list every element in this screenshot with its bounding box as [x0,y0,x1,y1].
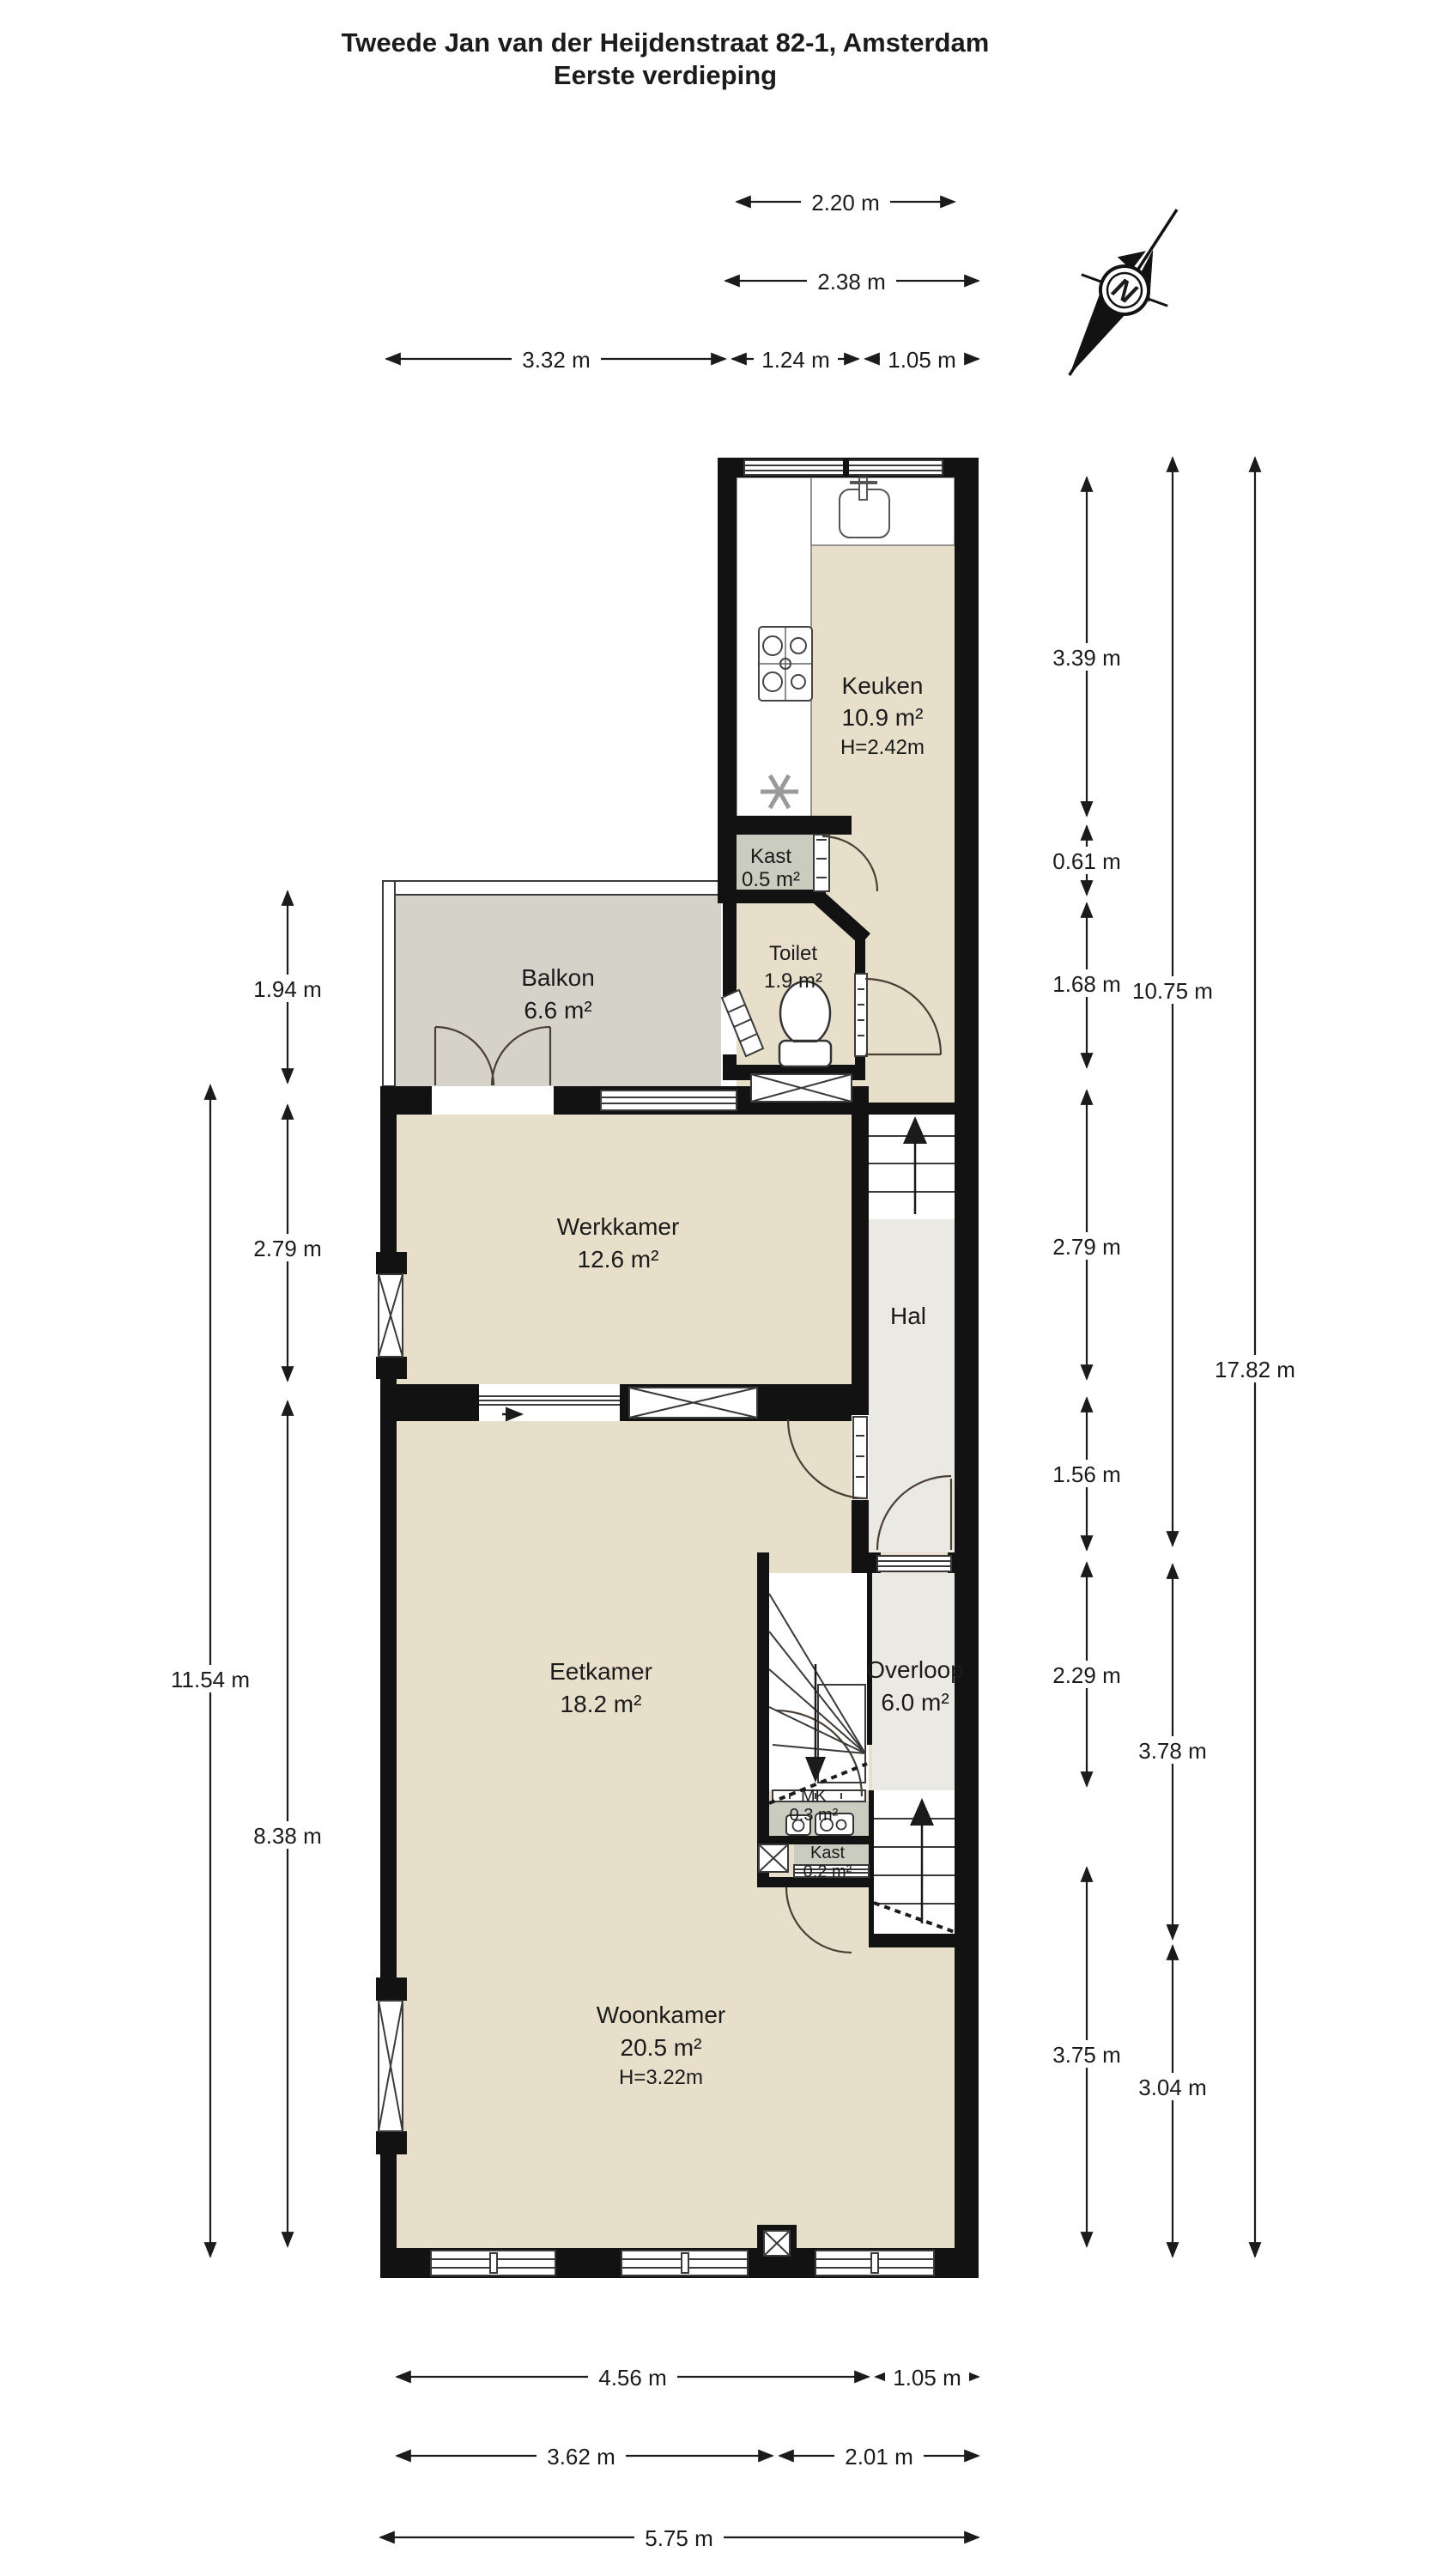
dim-left-838: 8.38 m [243,1401,332,2246]
label-mk-area: 0.3 m² [790,1806,839,1825]
svg-text:2.38 m: 2.38 m [817,269,886,295]
dim-bottom-201: 2.01 m [779,2442,979,2470]
dim-left-194: 1.94 m [243,891,332,1083]
dim-top-105: 1.05 m [865,345,979,373]
svg-text:0.61 m: 0.61 m [1052,848,1121,874]
dim-bottom-362: 3.62 m [397,2442,773,2470]
title-line2: Eerste verdieping [554,60,777,90]
page-title: Tweede Jan van der Heijdenstraat 82-1, A… [342,27,990,90]
svg-text:5.75 m: 5.75 m [645,2525,713,2551]
svg-text:2.01 m: 2.01 m [845,2444,913,2470]
label-overloop: Overloop [866,1656,964,1683]
dim-bottom-575: 5.75 m [380,2524,979,2551]
window-overloop-top [877,1556,951,1571]
stove-icon [759,627,812,701]
wall-kitchen-bottom [723,816,852,835]
label-kast-klein-area: 0.2 m² [803,1862,852,1881]
svg-text:1.05 m: 1.05 m [893,2365,961,2391]
label-keuken: Keuken [842,672,924,699]
dim-right-156: 1.56 m [1042,1398,1131,1550]
dim-right-1782: 17.82 m [1204,458,1306,2257]
balkon-wall-left [383,881,395,1086]
wall-toilet-right-upper [855,934,865,977]
wall-werkkamer-bottom [380,1384,869,1421]
svg-text:1.94 m: 1.94 m [253,976,322,1002]
svg-text:3.39 m: 3.39 m [1052,645,1121,671]
wall-right-outer [955,458,979,2278]
svg-text:3.75 m: 3.75 m [1052,2042,1121,2068]
cabinet-x-bottom [757,2225,797,2262]
wall-kitchen-left [718,458,737,903]
svg-text:17.82 m: 17.82 m [1215,1357,1295,1382]
svg-text:3.04 m: 3.04 m [1138,2075,1207,2100]
window-bottom-1 [431,2251,555,2275]
dim-right-378: 3.78 m [1128,1564,1217,1939]
label-toilet-area: 1.9 m² [764,969,822,993]
dim-right-375: 3.75 m [1042,1868,1131,2246]
dim-right-168: 1.68 m [1042,903,1131,1067]
svg-text:11.54 m: 11.54 m [171,1667,250,1692]
label-woonkamer-area: 20.5 m² [621,2034,702,2061]
compass-icon: N [1032,185,1214,400]
label-eetkamer: Eetkamer [549,1658,652,1685]
dim-top-124: 1.24 m [732,345,858,373]
window-bottom-2 [621,2251,748,2275]
svg-text:3.78 m: 3.78 m [1138,1738,1207,1764]
floorplan-canvas: Tweede Jan van der Heijdenstraat 82-1, A… [0,0,1449,2576]
label-werkkamer-area: 12.6 m² [578,1246,659,1273]
wall-toilet-left-upper [723,903,737,996]
door-balkon-opening [432,1086,554,1115]
svg-text:2.79 m: 2.79 m [1052,1234,1121,1260]
window-kitchen-top [744,459,943,477]
label-kast-boven-area: 0.5 m² [742,868,800,891]
svg-text:2.20 m: 2.20 m [811,190,880,216]
window-woonkamer-left [376,1978,407,2154]
dim-top-332: 3.32 m [386,345,725,373]
dim-top-238: 2.38 m [725,267,979,295]
wall-stairs-top-band [865,1103,955,1115]
label-keuken-height: H=2.42m [840,736,925,759]
dim-right-061: 0.61 m [1042,826,1131,895]
cabinet-x-werkkamer [629,1388,757,1418]
dim-right-304: 3.04 m [1128,1946,1217,2257]
toilet-icon [779,981,831,1066]
title-line1: Tweede Jan van der Heijdenstraat 82-1, A… [342,27,990,58]
svg-text:10.75 m: 10.75 m [1132,978,1213,1004]
wall-kast-bottom [723,890,826,903]
wall-overloop-top-left [852,1552,881,1573]
cabinet-x-kastblock [759,1844,788,1872]
wall-mainstairs-bottom [869,1934,979,1947]
wall-divider-upper [852,1115,869,1421]
wall-winder-left [757,1552,769,1820]
label-balkon: Balkon [521,964,595,991]
label-toilet: Toilet [769,942,817,965]
hal-floor [869,1219,955,1552]
label-woonkamer: Woonkamer [597,2002,725,2028]
main-stairs-floor [874,1790,955,1934]
dim-bottom-105: 1.05 m [876,2363,979,2391]
svg-text:1.68 m: 1.68 m [1052,971,1121,997]
label-balkon-area: 6.6 m² [524,997,591,1024]
label-kast-klein: Kast [810,1844,845,1862]
label-woonkamer-height: H=3.22m [619,2066,703,2089]
window-bottom-3 [815,2251,934,2275]
svg-text:3.32 m: 3.32 m [522,347,591,373]
door-sliding-werkkamer [479,1384,620,1421]
window-werkkamer-left [376,1252,407,1379]
svg-text:2.79 m: 2.79 m [253,1236,322,1261]
balkon-wall-top [383,881,721,895]
label-mk: MK [801,1787,828,1806]
label-werkkamer: Werkkamer [557,1213,680,1240]
cabinet-x-toilet [751,1074,852,1102]
svg-text:1.56 m: 1.56 m [1052,1461,1121,1487]
dim-bottom-456: 4.56 m [397,2363,869,2391]
label-eetkamer-area: 18.2 m² [561,1691,642,1717]
svg-text:1.24 m: 1.24 m [761,347,830,373]
dim-right-279: 2.79 m [1042,1091,1131,1379]
label-hal: Hal [890,1303,926,1329]
label-overloop-area: 6.0 m² [881,1689,949,1716]
dim-right-229: 2.29 m [1042,1563,1131,1786]
label-keuken-area: 10.9 m² [842,704,924,731]
label-kast-boven: Kast [750,845,791,868]
dim-right-339: 3.39 m [1042,477,1131,816]
wall-divider-stub [852,1500,869,1552]
window-werkkamer-top [601,1091,737,1110]
svg-text:1.05 m: 1.05 m [888,347,956,373]
svg-text:8.38 m: 8.38 m [253,1823,322,1849]
dim-top-220: 2.20 m [737,188,955,216]
wall-kastblock-left [757,1790,769,1887]
svg-text:4.56 m: 4.56 m [598,2365,667,2391]
dim-left-279: 2.79 m [243,1105,332,1381]
floorplan-page: Tweede Jan van der Heijdenstraat 82-1, A… [0,0,1449,2576]
svg-text:3.62 m: 3.62 m [547,2444,615,2470]
wall-overloop-top-right [948,1552,979,1573]
svg-text:2.29 m: 2.29 m [1052,1662,1121,1688]
